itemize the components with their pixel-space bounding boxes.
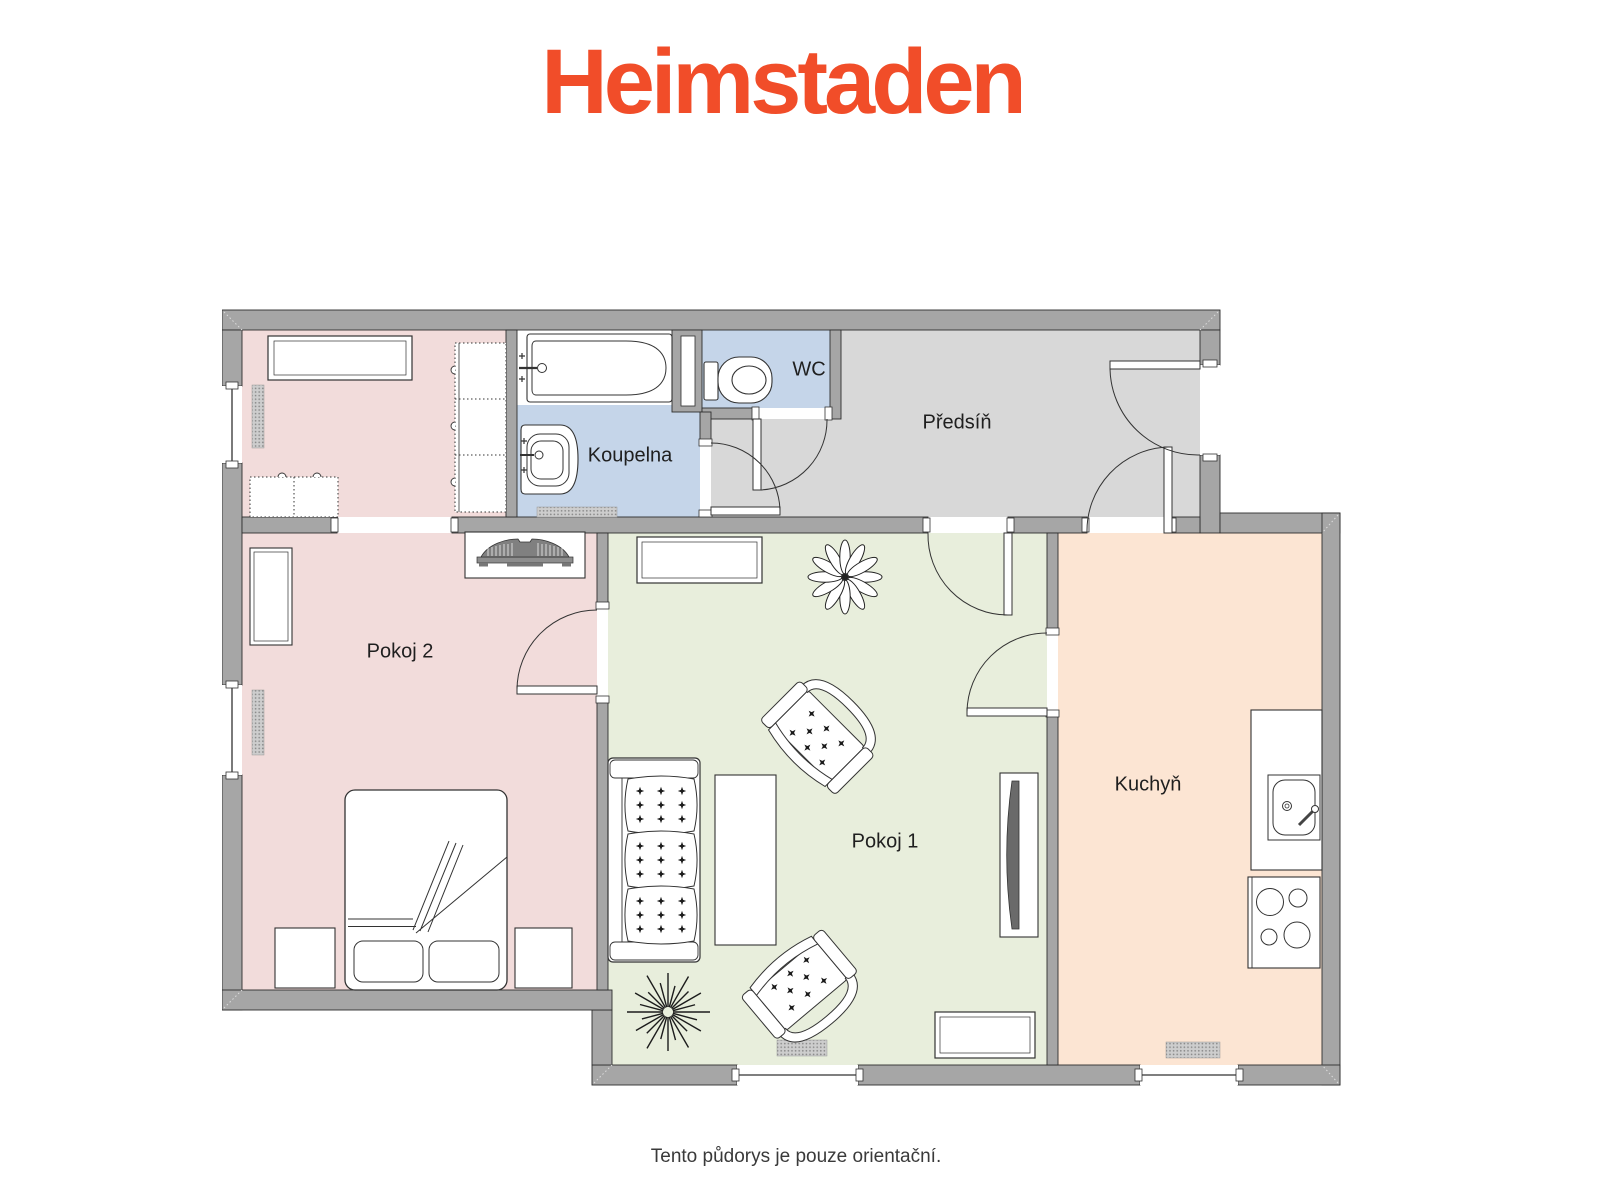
tv-icon [1000,773,1038,937]
wall-top [222,310,1220,330]
wall-corridor-left [700,412,711,443]
room-label-predsin: Předsíň [923,412,992,435]
wall-pokoj1-kuchyn [1047,712,1058,1065]
wall-pokoj2-pokoj1 [597,533,608,607]
radiator-icon [1166,1042,1220,1058]
window-kuchyn [1135,1065,1243,1085]
wall-interior [242,517,337,533]
pillow-icon [429,941,499,982]
sideboard-icon [637,537,762,583]
window-left-2 [222,681,242,779]
wall-kitchen-right [1322,513,1340,1085]
knob-icon [451,366,455,374]
cabinet-icon [935,1012,1035,1058]
wall-left [222,330,242,386]
nightstand-icon [515,928,572,988]
knob-icon [313,473,321,477]
wall-right-hall [1200,455,1220,533]
knob-icon [451,422,455,430]
tall-wardrobe-icon [455,343,506,512]
piano-icon [465,532,585,578]
cabinet-icon [250,548,292,645]
shaft-niche [681,336,695,406]
nightstand-icon [275,928,335,988]
predsin-corridor-floor [711,419,841,517]
floor-plan [222,308,1342,1088]
room-label-kuchyn: Kuchyň [1115,774,1182,797]
page: Heimstaden [0,0,1600,1200]
wall-left [222,463,242,685]
room-label-wc: WC [792,359,825,382]
radiator-icon [777,1040,827,1056]
knob-icon [278,473,286,477]
heimstaden-logo: Heimstaden [0,30,1564,135]
wall-pokoj1-kuchyn [1047,533,1058,633]
wall-dressing-bath [506,330,517,517]
wall-step-left [592,1010,612,1065]
sofa-icon [608,758,700,962]
wall-pokoj2-bottom [222,990,612,1010]
predsin-floor [841,330,1200,517]
bathtub-icon [519,334,672,402]
room-label-koupelna: Koupelna [588,445,673,468]
knob-icon [451,478,455,486]
radiator-icon [252,385,264,448]
room-label-pokoj2: Pokoj 2 [367,641,434,664]
radiator-icon [252,690,264,755]
kitchen-sink-icon [1268,775,1320,840]
window-pokoj1 [732,1065,863,1085]
wall-interior [452,517,928,533]
bed-icon [345,790,507,990]
washbasin-icon [520,425,578,494]
disclaimer-text: Tento půdorys je pouze orientační. [0,1146,1592,1168]
wall-left [222,775,242,1010]
room-label-pokoj1: Pokoj 1 [852,831,919,854]
stove-icon [1248,877,1320,968]
wardrobe-icon [250,477,338,517]
wall-interior [1008,517,1087,533]
wall-bottom [592,1065,737,1085]
wall-wc-right [830,330,841,419]
wall-bottom [858,1065,1140,1085]
dresser-icon [268,336,412,380]
toilet-icon [704,357,772,403]
kuchyn-fixtures [1248,710,1322,968]
window-left-1 [222,382,242,468]
wall-pokoj2-pokoj1 [597,697,608,990]
bath-mat-icon [537,507,617,517]
pillow-icon [354,941,423,982]
coffee-table-icon [715,775,776,945]
